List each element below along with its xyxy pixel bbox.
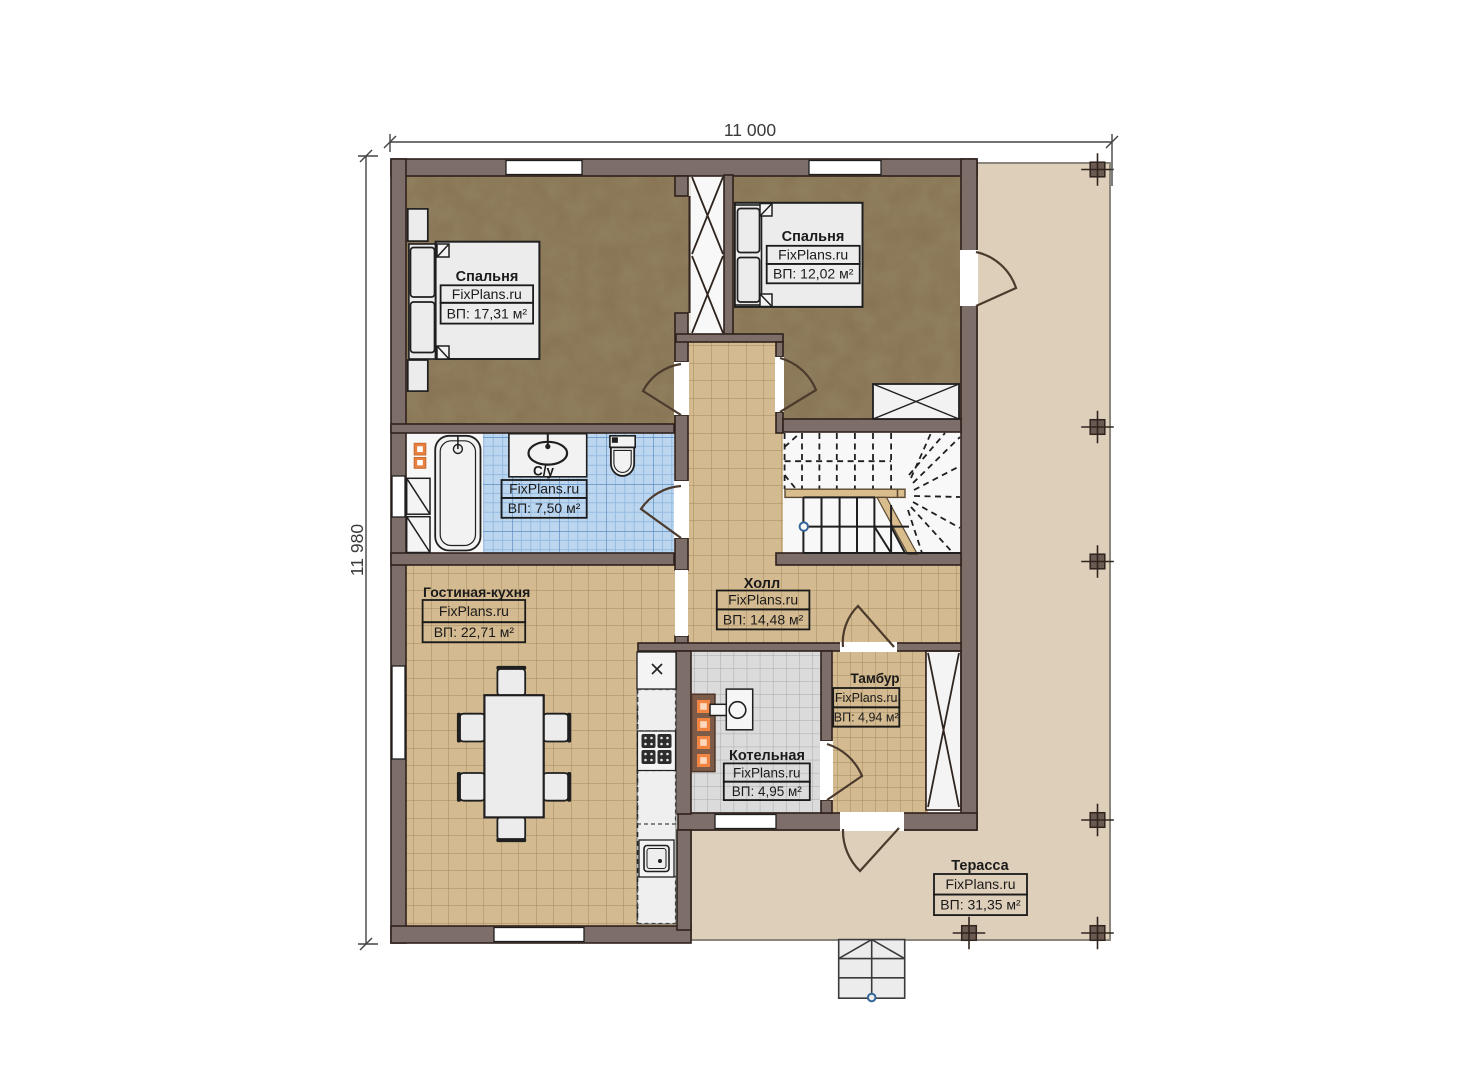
svg-text:FixPlans.ru: FixPlans.ru: [733, 766, 801, 781]
svg-text:Терасса: Терасса: [951, 858, 1009, 874]
svg-text:11 000: 11 000: [724, 120, 776, 140]
svg-text:ВП: 7,50 м²: ВП: 7,50 м²: [508, 500, 581, 516]
svg-text:ВП: 22,71 м²: ВП: 22,71 м²: [434, 624, 515, 640]
svg-text:Котельная: Котельная: [729, 748, 805, 764]
svg-text:FixPlans.ru: FixPlans.ru: [439, 603, 509, 619]
svg-text:11 980: 11 980: [347, 524, 367, 576]
svg-text:FixPlans.ru: FixPlans.ru: [728, 592, 798, 608]
svg-text:ВП: 14,48 м²: ВП: 14,48 м²: [723, 612, 804, 628]
svg-text:ВП: 12,02 м²: ВП: 12,02 м²: [773, 266, 854, 282]
svg-text:FixPlans.ru: FixPlans.ru: [778, 247, 848, 263]
svg-text:ВП: 17,31 м²: ВП: 17,31 м²: [447, 306, 528, 322]
svg-text:Спальня: Спальня: [456, 269, 519, 285]
svg-text:FixPlans.ru: FixPlans.ru: [945, 876, 1015, 892]
svg-text:Тамбур: Тамбур: [851, 671, 900, 686]
svg-text:Гостиная-кухня: Гостиная-кухня: [423, 584, 530, 600]
svg-text:FixPlans.ru: FixPlans.ru: [452, 286, 522, 302]
svg-text:FixPlans.ru: FixPlans.ru: [509, 481, 579, 497]
svg-text:С/у: С/у: [533, 464, 555, 479]
svg-text:Холл: Холл: [744, 576, 780, 592]
svg-text:FixPlans.ru: FixPlans.ru: [835, 691, 898, 705]
svg-text:ВП: 4,95 м²: ВП: 4,95 м²: [732, 784, 803, 799]
svg-text:Спальня: Спальня: [782, 229, 845, 245]
svg-text:ВП: 4,94 м²: ВП: 4,94 м²: [834, 711, 899, 725]
svg-text:ВП: 31,35 м²: ВП: 31,35 м²: [940, 897, 1021, 913]
